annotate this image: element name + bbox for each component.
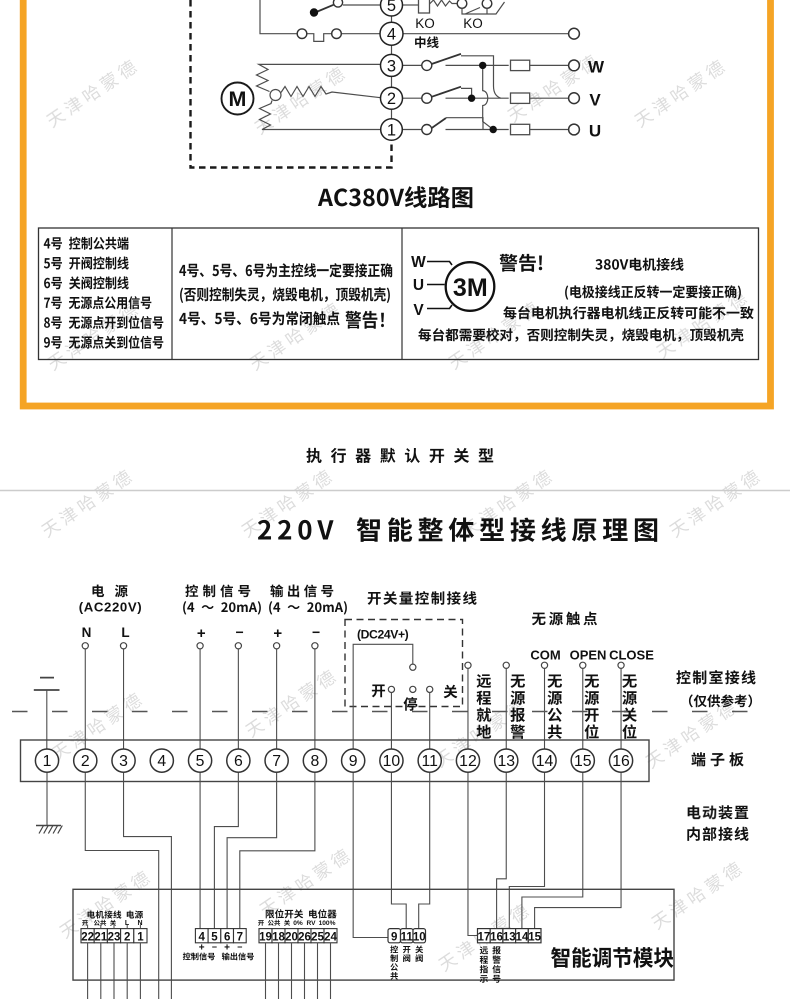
svg-text:RV: RV	[306, 920, 316, 927]
svg-text:W: W	[411, 254, 426, 271]
svg-text:L: L	[121, 625, 129, 640]
svg-text:5: 5	[387, 0, 396, 15]
svg-text:1: 1	[43, 753, 52, 770]
svg-text:0%: 0%	[293, 920, 303, 927]
svg-text:COM: COM	[530, 648, 560, 663]
svg-text:13: 13	[497, 753, 515, 770]
svg-text:18: 18	[272, 931, 285, 943]
svg-text:22: 22	[81, 931, 94, 943]
svg-text:9: 9	[391, 931, 397, 943]
svg-text:OPEN: OPEN	[570, 648, 607, 663]
svg-text:+: +	[197, 625, 206, 642]
svg-text:+: +	[273, 625, 282, 642]
svg-text:14: 14	[516, 931, 529, 943]
svg-text:(DC24V+): (DC24V+)	[357, 628, 409, 642]
svg-text:6: 6	[224, 931, 230, 943]
svg-text:−: −	[236, 624, 244, 640]
svg-text:19: 19	[259, 931, 272, 943]
svg-text:3M: 3M	[453, 274, 488, 302]
svg-text:26: 26	[298, 931, 311, 943]
svg-text:10: 10	[383, 753, 401, 770]
svg-text:W: W	[588, 58, 605, 77]
svg-text:7: 7	[272, 753, 281, 770]
svg-text:23: 23	[108, 931, 121, 943]
svg-text:3: 3	[387, 57, 396, 75]
svg-text:(AC220V): (AC220V)	[79, 600, 142, 615]
svg-text:17: 17	[477, 931, 490, 943]
svg-text:6: 6	[234, 753, 243, 770]
svg-text:16: 16	[612, 753, 630, 770]
svg-text:8: 8	[310, 753, 319, 770]
svg-text:N: N	[82, 625, 92, 640]
svg-text:M: M	[229, 87, 247, 111]
svg-text:4: 4	[387, 26, 396, 44]
svg-text:CLOSE: CLOSE	[609, 648, 654, 663]
svg-text:2: 2	[124, 931, 130, 943]
svg-text:KO: KO	[415, 16, 435, 31]
svg-text:14: 14	[536, 753, 554, 770]
svg-text:3: 3	[119, 753, 128, 770]
svg-text:16: 16	[490, 931, 503, 943]
svg-text:20: 20	[285, 931, 298, 943]
svg-text:U: U	[413, 277, 424, 294]
svg-text:11: 11	[401, 931, 414, 943]
svg-text:V: V	[413, 302, 424, 319]
svg-text:+: +	[199, 943, 205, 954]
svg-text:+: +	[224, 943, 230, 954]
svg-text:5: 5	[196, 753, 205, 770]
svg-text:24: 24	[324, 931, 337, 943]
svg-text:1: 1	[387, 122, 396, 140]
svg-text:L: L	[125, 920, 130, 927]
svg-text:11: 11	[421, 753, 438, 770]
svg-text:12: 12	[459, 753, 477, 770]
svg-text:KO: KO	[463, 16, 483, 31]
svg-text:2: 2	[387, 90, 396, 108]
svg-text:−: −	[212, 942, 217, 952]
svg-text:21: 21	[94, 931, 107, 943]
svg-text:4: 4	[157, 753, 166, 770]
svg-text:9: 9	[349, 753, 358, 770]
svg-text:1: 1	[137, 931, 144, 943]
svg-text:V: V	[589, 90, 601, 109]
svg-text:25: 25	[311, 931, 324, 943]
svg-text:15: 15	[574, 753, 592, 770]
svg-text:U: U	[589, 122, 601, 141]
svg-text:100%: 100%	[319, 920, 336, 927]
svg-text:4: 4	[199, 931, 206, 943]
svg-text:2: 2	[81, 753, 90, 770]
svg-text:13: 13	[503, 931, 516, 943]
svg-text:10: 10	[413, 931, 426, 943]
svg-text:N: N	[137, 920, 142, 927]
svg-text:15: 15	[528, 931, 541, 943]
svg-text:−: −	[237, 942, 242, 952]
svg-text:−: −	[312, 624, 320, 640]
